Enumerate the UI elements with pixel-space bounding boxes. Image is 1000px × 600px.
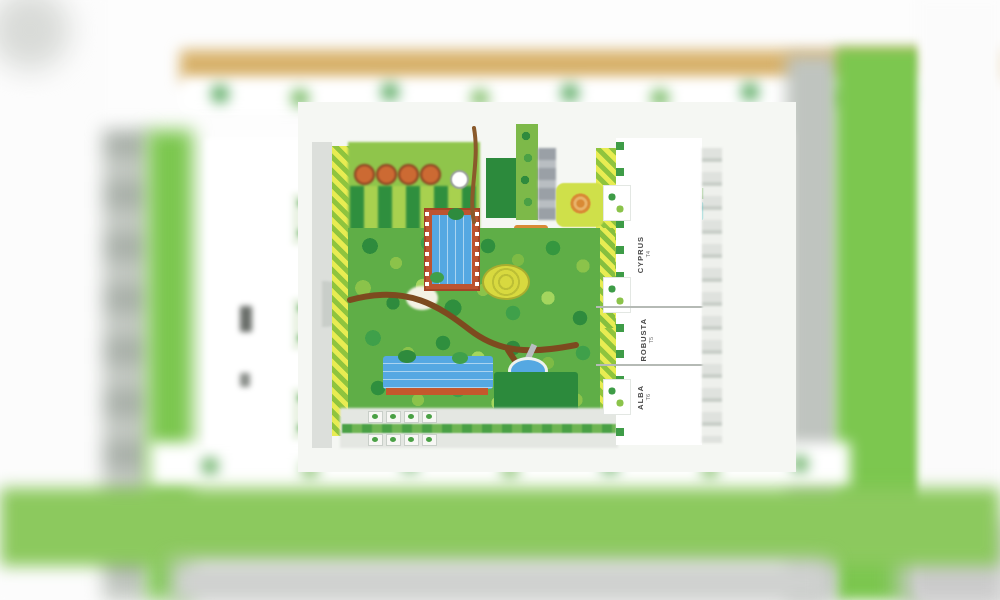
lawn-panel-north xyxy=(486,158,516,218)
deck-loungers xyxy=(425,212,429,287)
fountain xyxy=(450,170,469,189)
lawn-panel-south xyxy=(494,372,578,412)
spiral-feature xyxy=(570,193,591,214)
tower-code: T6 xyxy=(646,394,652,400)
tower-code: T5 xyxy=(649,337,655,343)
east-tower-block xyxy=(616,138,702,445)
planter-square xyxy=(422,434,437,446)
block-divider xyxy=(596,364,718,366)
round-planter xyxy=(420,164,441,185)
planter-square xyxy=(368,434,383,446)
tower-name: CYPRUS xyxy=(636,236,645,273)
deck-loungers xyxy=(475,212,479,287)
planter-square xyxy=(386,434,401,446)
illegible-building-label xyxy=(240,306,252,332)
tree-lined-walk xyxy=(516,124,538,220)
round-planter xyxy=(376,164,397,185)
round-planter xyxy=(354,164,375,185)
planter-square xyxy=(386,411,401,423)
south-road xyxy=(170,560,830,600)
spiral-lawn-mound xyxy=(482,264,530,300)
site-plan-image: CYPRUS T4 ROBUSTA T5 ALBA T6 xyxy=(0,0,1000,600)
block-divider xyxy=(596,306,718,308)
pool-side-tree xyxy=(448,208,464,220)
pool-side-tree xyxy=(398,350,416,363)
planter-square xyxy=(422,411,437,423)
pool-side-tree xyxy=(452,352,468,364)
tower-label-robusta: ROBUSTA T5 xyxy=(639,318,655,362)
tower-wing xyxy=(604,186,630,220)
south-lawn xyxy=(0,488,1000,566)
lap-pool-deck xyxy=(386,388,488,395)
clubhouse-strip xyxy=(538,148,556,220)
tower-code: T4 xyxy=(646,251,652,257)
building-core-mark xyxy=(240,373,250,387)
tower-label-alba: ALBA T6 xyxy=(636,385,652,410)
planter-square xyxy=(404,411,419,423)
planter-square xyxy=(404,434,419,446)
tower-name: ALBA xyxy=(636,385,645,410)
south-hedge-row xyxy=(342,424,616,433)
round-planter xyxy=(398,164,419,185)
tower-label-cyprus: CYPRUS T4 xyxy=(636,236,652,273)
spiral-garden xyxy=(556,183,604,227)
parking-strip xyxy=(702,148,722,443)
pool-side-tree xyxy=(430,272,444,283)
tower-wing xyxy=(604,380,630,414)
planter-square xyxy=(368,411,383,423)
tower-name: ROBUSTA xyxy=(639,318,648,362)
